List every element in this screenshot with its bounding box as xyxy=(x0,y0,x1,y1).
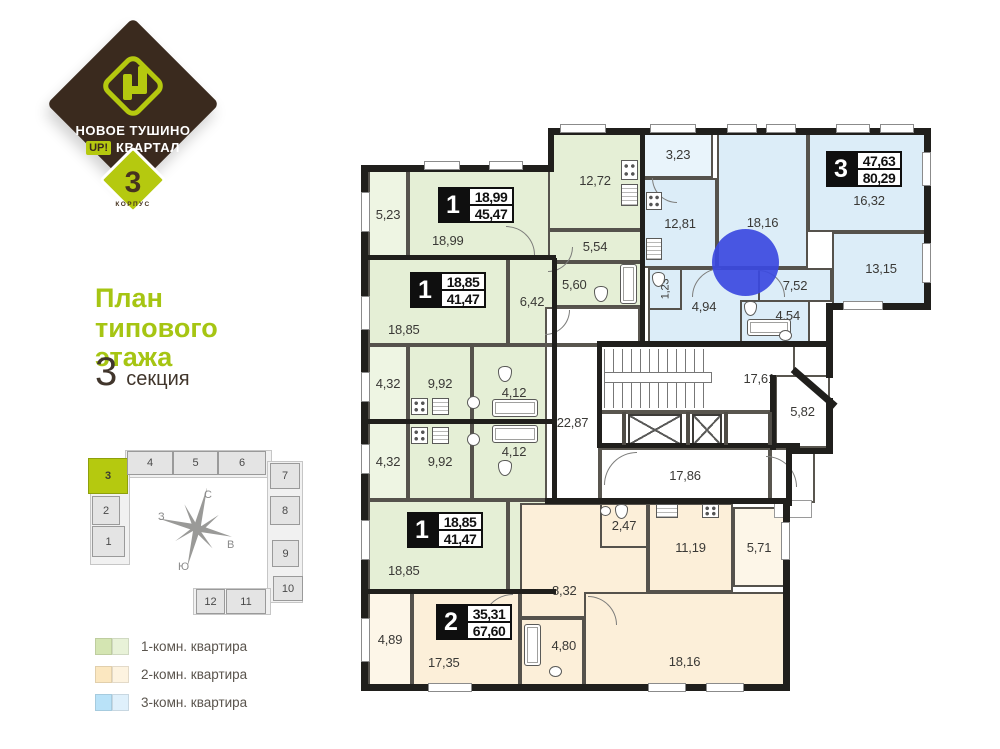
window xyxy=(836,124,870,133)
sink-icon xyxy=(467,396,480,409)
wall xyxy=(361,165,368,691)
kitchen-counter-icon xyxy=(656,504,678,518)
window xyxy=(361,296,370,330)
room-balcony: 5,23 xyxy=(368,170,408,258)
stove-icon xyxy=(411,398,428,415)
sink-icon xyxy=(467,433,480,446)
compass-rose-icon: С З В Ю xyxy=(155,488,245,578)
wall xyxy=(597,341,828,347)
block-number: 3 xyxy=(40,168,226,198)
wall xyxy=(365,255,556,260)
kitchen-counter-icon xyxy=(432,398,449,415)
legend-item-1room: 1-комн. квартира xyxy=(95,638,247,655)
sink-icon xyxy=(549,666,562,677)
minimap-section-3-selected[interactable]: 3 xyxy=(88,458,128,494)
window xyxy=(361,444,370,474)
window xyxy=(922,243,931,283)
bathtub-icon xyxy=(620,264,637,304)
minimap-section-11[interactable]: 11 xyxy=(226,589,266,614)
kitchen-counter-icon xyxy=(432,427,449,444)
wall xyxy=(365,419,556,424)
bathtub-icon xyxy=(524,624,541,666)
window xyxy=(361,372,370,402)
room-kitchen: 12,72 xyxy=(548,131,642,230)
wall xyxy=(640,128,645,347)
brand-logo: НОВОЕ ТУШИНО UP! КВАРТАЛ 3 КОРПУС xyxy=(40,18,226,233)
bathtub-icon xyxy=(492,399,538,417)
window xyxy=(766,124,796,133)
cursor-marker xyxy=(712,229,779,296)
window xyxy=(727,124,757,133)
brand-name: НОВОЕ ТУШИНО xyxy=(40,123,226,138)
minimap-section-12[interactable]: 12 xyxy=(196,589,225,614)
wall xyxy=(826,398,833,454)
apartment-label-3room[interactable]: 3 47,63 80,29 xyxy=(826,151,902,187)
room-balcony: 4,89 xyxy=(368,592,412,686)
window xyxy=(781,522,790,560)
elevator-icon xyxy=(628,414,682,446)
stove-icon xyxy=(702,504,719,518)
room-balcony: 5,71 xyxy=(733,507,785,587)
minimap-section-6[interactable]: 6 xyxy=(218,451,266,475)
window xyxy=(361,618,370,662)
wall xyxy=(552,258,557,503)
window xyxy=(361,192,370,232)
wall xyxy=(788,448,833,454)
section-number: 3 xyxy=(95,352,117,392)
stove-icon xyxy=(646,192,662,210)
window xyxy=(648,683,686,692)
section-title: 3 секция xyxy=(95,352,190,392)
page: НОВОЕ ТУШИНО UP! КВАРТАЛ 3 КОРПУС План т… xyxy=(0,0,1000,749)
elevator-icon xyxy=(692,414,722,446)
room-living: 18,16 xyxy=(584,592,785,687)
window xyxy=(489,161,523,170)
minimap-section-8[interactable]: 8 xyxy=(270,496,300,525)
window xyxy=(706,683,744,692)
minimap-section-9[interactable]: 9 xyxy=(272,540,299,567)
room-balcony: 4,32 xyxy=(368,422,408,500)
minimap-section-1[interactable]: 1 xyxy=(92,526,125,557)
legend-item-2room: 2-комн. квартира xyxy=(95,666,247,683)
bathtub-icon xyxy=(492,425,538,443)
wall xyxy=(365,589,556,594)
window xyxy=(650,124,696,133)
window xyxy=(424,161,460,170)
building-minimap: 1 2 3 4 5 6 7 8 9 10 11 12 xyxy=(85,445,320,630)
kitchen-counter-icon xyxy=(646,238,662,260)
legend-item-3room: 3-комн. квартира xyxy=(95,694,247,711)
stairs-rail xyxy=(604,372,712,383)
legend-swatch-blue xyxy=(95,694,129,711)
window xyxy=(843,301,883,310)
stove-icon xyxy=(411,427,428,444)
apartment-label-1room[interactable]: 1 18,99 45,47 xyxy=(438,187,514,223)
minimap-section-5[interactable]: 5 xyxy=(173,451,218,475)
minimap-section-10[interactable]: 10 xyxy=(273,576,303,601)
legend-swatch-orange xyxy=(95,666,129,683)
room-balcony: 3,23 xyxy=(643,131,713,178)
sink-icon xyxy=(779,330,792,341)
window xyxy=(880,124,914,133)
wall xyxy=(768,412,772,445)
wall xyxy=(724,412,728,445)
up-badge: UP! xyxy=(86,141,111,155)
wall xyxy=(686,412,690,445)
block-label: КОРПУС xyxy=(40,201,226,208)
apartment-label-2room[interactable]: 2 35,31 67,60 xyxy=(436,604,512,640)
legend-swatch-green xyxy=(95,638,129,655)
window xyxy=(560,124,606,133)
wall xyxy=(597,341,602,448)
apartment-label-1room[interactable]: 1 18,85 41,47 xyxy=(407,512,483,548)
brand-glyph-icon xyxy=(123,86,147,94)
window xyxy=(361,520,370,560)
legend: 1-комн. квартира 2-комн. квартира 3-комн… xyxy=(95,638,247,722)
minimap-section-4[interactable]: 4 xyxy=(127,451,173,475)
kitchen-counter-icon xyxy=(621,184,638,206)
window xyxy=(428,683,472,692)
room-living: 13,15 xyxy=(832,232,930,305)
window xyxy=(922,152,931,186)
room-balcony: 4,32 xyxy=(368,345,408,422)
stove-icon xyxy=(621,160,638,180)
minimap-section-2[interactable]: 2 xyxy=(92,496,120,525)
wall xyxy=(622,412,626,445)
apartment-label-1room[interactable]: 1 18,85 41,47 xyxy=(410,272,486,308)
sink-icon xyxy=(600,506,611,516)
minimap-section-7[interactable]: 7 xyxy=(270,463,300,489)
entrance-vestibule: 5,82 xyxy=(775,375,830,448)
